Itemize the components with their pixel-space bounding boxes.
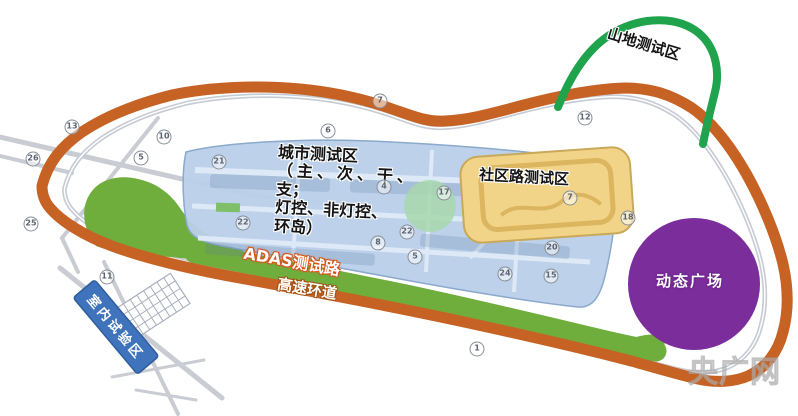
- road-number-marker: 24: [498, 267, 513, 282]
- road-number-marker: 1: [470, 342, 485, 357]
- road-number-marker: 5: [134, 151, 149, 166]
- road-number-marker: 5: [408, 250, 423, 265]
- road-number-marker: 4: [377, 180, 392, 195]
- road-number-marker: 20: [545, 241, 560, 256]
- urban-area-label: 城市测试区 （主、次、干、 支； 灯控、非灯控、 环岛）: [274, 143, 419, 242]
- road-number-marker: 11: [100, 270, 115, 285]
- road-number-marker: 8: [371, 236, 386, 251]
- road-number-marker: 18: [621, 211, 636, 226]
- road-number-marker: 6: [321, 124, 336, 139]
- road-number-marker: 25: [24, 217, 39, 232]
- road-number-marker: 22: [400, 225, 415, 240]
- small-green-lot: [216, 203, 240, 213]
- road-number-marker: 22: [236, 216, 251, 231]
- road-number-marker: 12: [578, 111, 593, 126]
- road-number-marker: 15: [544, 269, 559, 284]
- watermark: 央广网: [688, 356, 781, 391]
- road-number-marker: 13: [65, 120, 80, 135]
- road-number-marker: 17: [437, 186, 452, 201]
- community-test-zone: [459, 146, 635, 244]
- road-number-marker: 7: [563, 191, 578, 206]
- road-number-marker: 7: [373, 94, 388, 109]
- road-number-marker: 26: [26, 152, 41, 167]
- dynamic-plaza-label: 动态广场: [656, 273, 724, 290]
- road-number-marker: 21: [212, 155, 227, 170]
- road-number-marker: 10: [157, 130, 172, 145]
- test-track-map: 室内试验区 山地测试区 城市测试区 （主、次、干、 支； 灯控、非灯控、 环岛）…: [0, 0, 798, 416]
